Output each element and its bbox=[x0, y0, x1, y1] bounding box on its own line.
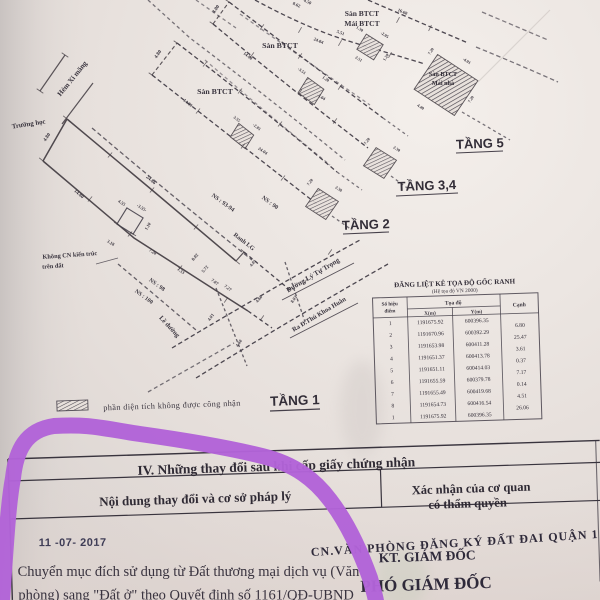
svg-text:6: 6 bbox=[391, 380, 394, 386]
svg-text:TẦNG 2: TẦNG 2 bbox=[342, 216, 390, 233]
svg-text:4: 4 bbox=[390, 356, 393, 362]
svg-text:600413.78: 600413.78 bbox=[466, 353, 490, 360]
svg-text:3.61: 3.61 bbox=[516, 346, 526, 352]
svg-text:1: 1 bbox=[392, 415, 395, 421]
svg-text:1191675.92: 1191675.92 bbox=[417, 319, 444, 326]
svg-text:1191651.37: 1191651.37 bbox=[418, 355, 445, 362]
svg-text:KT. GIÁM ĐỐC: KT. GIÁM ĐỐC bbox=[379, 547, 476, 565]
svg-text:600416.54: 600416.54 bbox=[467, 400, 491, 407]
svg-text:Sàn BTCT: Sàn BTCT bbox=[197, 87, 234, 96]
svg-text:600411.28: 600411.28 bbox=[466, 342, 490, 349]
svg-text:1191670.96: 1191670.96 bbox=[417, 331, 444, 338]
svg-text:TẦNG 5: TẦNG 5 bbox=[456, 135, 504, 152]
svg-text:Số hiệu: Số hiệu bbox=[381, 300, 398, 308]
svg-text:phòng) sang "Đất ở" theo Quyết: phòng) sang "Đất ở" theo Quyết định số 1… bbox=[18, 588, 354, 600]
svg-text:8: 8 bbox=[391, 403, 394, 409]
svg-text:Mái nhà: Mái nhà bbox=[432, 80, 454, 87]
svg-text:7: 7 bbox=[391, 392, 394, 398]
svg-text:X(m): X(m) bbox=[424, 309, 436, 316]
svg-text:1191654.73: 1191654.73 bbox=[420, 402, 447, 409]
svg-text:Y(m): Y(m) bbox=[471, 308, 483, 315]
svg-text:1191675.92: 1191675.92 bbox=[420, 414, 447, 421]
svg-text:25.47: 25.47 bbox=[514, 334, 527, 340]
svg-text:11 -07- 2017: 11 -07- 2017 bbox=[39, 537, 107, 549]
svg-text:3: 3 bbox=[390, 345, 393, 351]
svg-text:điểm: điểm bbox=[384, 307, 396, 314]
svg-text:4.51: 4.51 bbox=[517, 393, 527, 399]
svg-text:5: 5 bbox=[390, 368, 393, 374]
svg-text:600396.35: 600396.35 bbox=[465, 318, 489, 325]
svg-text:Cạnh: Cạnh bbox=[513, 302, 527, 308]
svg-text:1191655.49: 1191655.49 bbox=[419, 390, 446, 397]
svg-text:1191653.98: 1191653.98 bbox=[418, 343, 445, 350]
svg-text:Sàn BTCT: Sàn BTCT bbox=[345, 9, 379, 18]
svg-text:Tọa độ: Tọa độ bbox=[445, 300, 462, 307]
svg-text:600392.29: 600392.29 bbox=[465, 330, 489, 337]
svg-text:600396.35: 600396.35 bbox=[468, 412, 492, 419]
svg-text:1191651.11: 1191651.11 bbox=[419, 367, 446, 374]
svg-text:1191655.59: 1191655.59 bbox=[419, 378, 446, 385]
svg-text:7.17: 7.17 bbox=[516, 370, 526, 376]
svg-text:1: 1 bbox=[389, 321, 392, 327]
svg-text:Sàn BTCT: Sàn BTCT bbox=[429, 71, 458, 78]
svg-text:TẦNG 3,4: TẦNG 3,4 bbox=[397, 177, 457, 194]
svg-text:0.14: 0.14 bbox=[517, 382, 527, 388]
svg-text:600414.03: 600414.03 bbox=[466, 365, 490, 372]
svg-text:có thẩm quyền: có thẩm quyền bbox=[428, 495, 507, 511]
svg-text:0.37: 0.37 bbox=[516, 358, 526, 364]
svg-text:600379.78: 600379.78 bbox=[467, 377, 491, 384]
svg-text:TẦNG 1: TẦNG 1 bbox=[270, 392, 320, 409]
svg-text:Sàn BTCT: Sàn BTCT bbox=[262, 41, 299, 50]
svg-text:600419.68: 600419.68 bbox=[467, 389, 491, 396]
svg-text:26.06: 26.06 bbox=[516, 405, 529, 411]
svg-text:2: 2 bbox=[389, 333, 392, 339]
svg-text:Chuyển mục đích sử dụng từ Đất: Chuyển mục đích sử dụng từ Đất thương mạ… bbox=[18, 564, 360, 580]
svg-text:6.80: 6.80 bbox=[515, 323, 525, 329]
svg-text:(Hệ tọa độ VN 2000): (Hệ tọa độ VN 2000) bbox=[432, 287, 478, 295]
